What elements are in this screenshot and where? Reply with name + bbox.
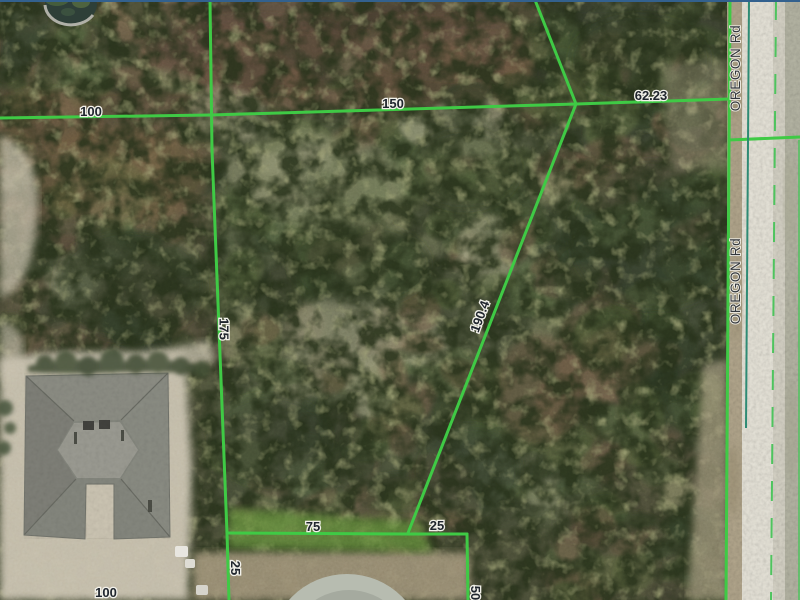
svg-text:175: 175: [217, 318, 232, 340]
svg-text:100: 100: [80, 104, 102, 119]
svg-text:25: 25: [430, 518, 444, 533]
svg-text:OREGON Rd: OREGON Rd: [728, 25, 743, 111]
svg-text:62.23: 62.23: [635, 88, 668, 103]
svg-text:50: 50: [468, 586, 483, 600]
svg-text:75: 75: [306, 519, 320, 534]
svg-text:100: 100: [95, 585, 117, 600]
svg-text:150: 150: [382, 96, 404, 111]
svg-text:OREGON Rd: OREGON Rd: [728, 238, 743, 324]
svg-text:25: 25: [228, 561, 243, 575]
